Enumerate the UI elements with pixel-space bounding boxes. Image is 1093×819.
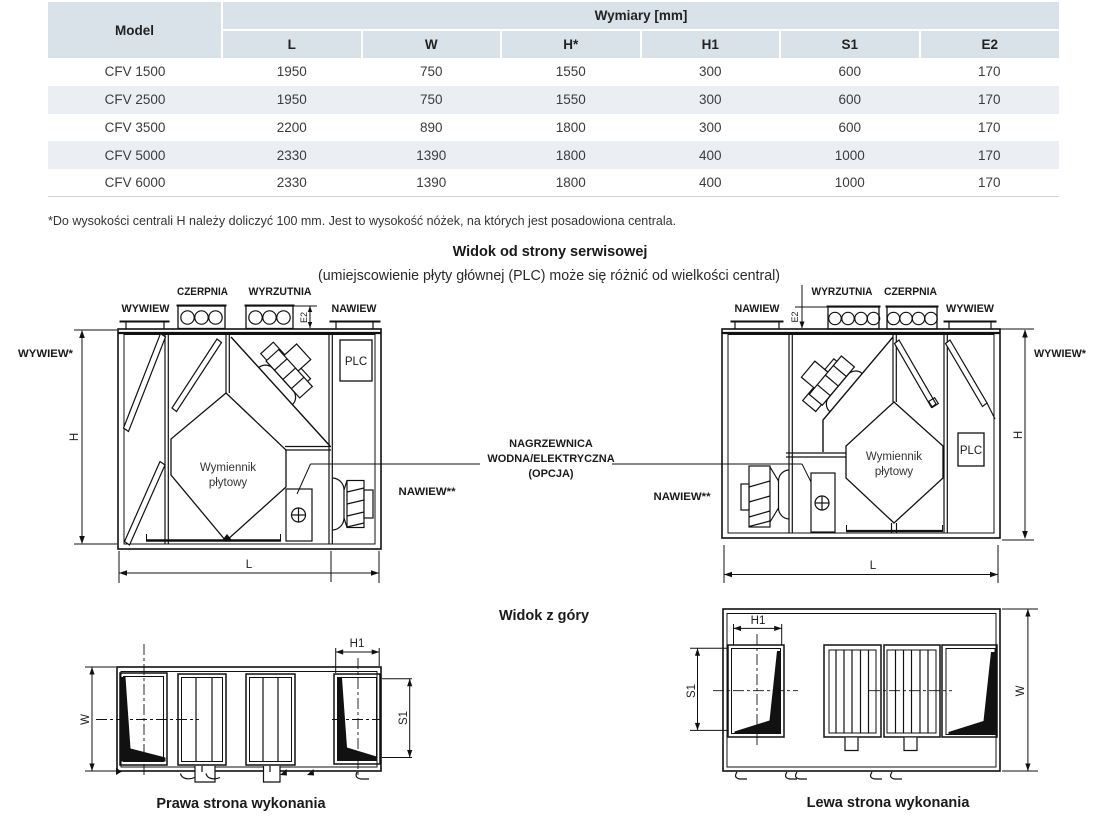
svg-text:Lewa strona wykonania: Lewa strona wykonania [807,795,971,811]
svg-text:(umiejscowienie płyty głównej: (umiejscowienie płyty głównej (PLC) może… [318,267,780,284]
svg-text:PLC: PLC [960,445,982,457]
svg-text:Widok z góry: Widok z góry [499,608,589,624]
svg-text:NAWIEW**: NAWIEW** [399,486,457,498]
svg-text:CZERPNIA: CZERPNIA [177,286,228,298]
svg-text:WYWIEW*: WYWIEW* [18,348,74,360]
svg-text:(OPCJA): (OPCJA) [528,468,574,480]
svg-text:płytowy: płytowy [875,466,914,478]
svg-text:S1: S1 [398,711,410,725]
svg-text:Wymiennik: Wymiennik [866,451,922,463]
svg-text:WYWIEW: WYWIEW [946,303,995,315]
svg-text:W: W [80,714,92,725]
svg-text:WYWIEW*: WYWIEW* [1034,348,1087,360]
svg-text:Widok od strony serwisowej: Widok od strony serwisowej [453,244,648,260]
svg-text:CZERPNIA: CZERPNIA [884,286,937,298]
svg-text:PLC: PLC [345,356,367,368]
svg-text:H: H [1013,431,1025,439]
svg-text:WYRZUTNIA: WYRZUTNIA [812,286,873,298]
svg-text:H1: H1 [350,638,365,650]
svg-text:E2: E2 [790,311,800,322]
svg-text:NAWIEW: NAWIEW [735,303,781,315]
svg-text:płytowy: płytowy [209,477,248,489]
svg-text:NAWIEW**: NAWIEW** [654,491,712,503]
svg-text:E2: E2 [299,312,309,323]
svg-text:L: L [870,560,877,572]
svg-text:Prawa strona wykonania: Prawa strona wykonania [156,796,326,812]
svg-text:L: L [246,559,253,571]
svg-text:WYRZUTNIA: WYRZUTNIA [249,286,312,298]
svg-text:Wymiennik: Wymiennik [200,462,256,474]
svg-text:H: H [69,433,81,441]
svg-text:H1: H1 [751,615,766,627]
svg-text:WYWIEW: WYWIEW [122,303,171,315]
svg-text:NAGRZEWNICA: NAGRZEWNICA [509,438,593,450]
svg-text:NAWIEW: NAWIEW [332,303,378,315]
svg-text:WODNA/ELEKTRYCZNA: WODNA/ELEKTRYCZNA [487,453,614,465]
svg-text:W: W [1015,685,1027,696]
svg-text:S1: S1 [686,684,698,698]
